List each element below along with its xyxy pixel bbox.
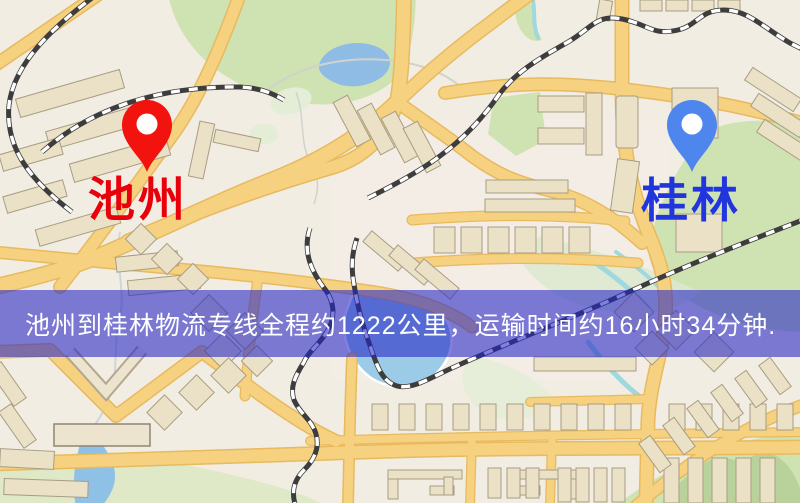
- map-image[interactable]: [0, 0, 800, 503]
- destination-pin-shape[interactable]: [667, 100, 717, 172]
- map-screenshot: 池州 桂林 池州到桂林物流专线全程约1222公里，运输时间约16小时34分钟.: [0, 0, 800, 503]
- origin-pin-icon[interactable]: [121, 99, 173, 173]
- destination-pin-icon[interactable]: [666, 99, 718, 173]
- pin-hole: [137, 114, 158, 135]
- route-info-banner: 池州到桂林物流专线全程约1222公里，运输时间约16小时34分钟.: [0, 290, 800, 357]
- origin-city-label: 池州: [88, 176, 188, 223]
- destination-city-label: 桂林: [641, 177, 741, 224]
- pin-hole: [682, 114, 703, 135]
- route-info-text: 池州到桂林物流专线全程约1222公里，运输时间约16小时34分钟.: [25, 290, 776, 357]
- origin-pin-shape[interactable]: [122, 100, 172, 172]
